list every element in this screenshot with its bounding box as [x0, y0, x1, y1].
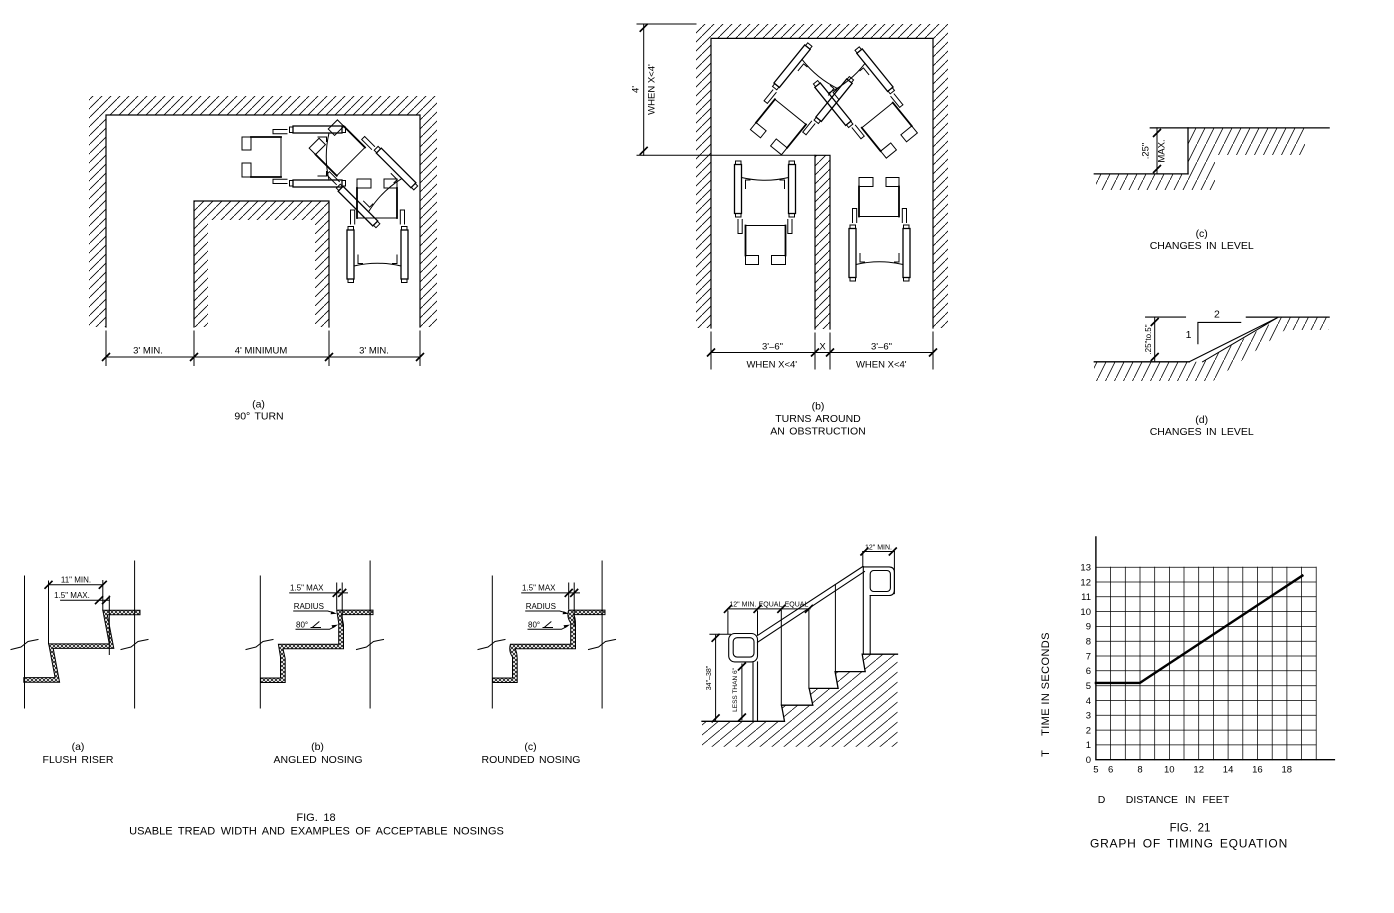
svg-text:T TIME IN SECONDS: T TIME IN SECONDS	[1040, 632, 1052, 757]
svg-text:(c): (c)	[524, 741, 536, 753]
svg-text:10: 10	[1164, 765, 1175, 776]
svg-text:(a): (a)	[252, 399, 265, 411]
svg-text:FIG. 18: FIG. 18	[296, 812, 335, 824]
svg-text:2: 2	[1214, 309, 1220, 321]
svg-text:12" MIN.: 12" MIN.	[729, 602, 756, 609]
svg-text:WHEN X<4': WHEN X<4'	[856, 360, 907, 371]
svg-text:CHANGES IN LEVEL: CHANGES IN LEVEL	[1150, 240, 1254, 252]
svg-text:8: 8	[1086, 637, 1091, 648]
svg-text:CHANGES IN LEVEL: CHANGES IN LEVEL	[1150, 426, 1254, 438]
svg-text:DISTANCE IN FEET: DISTANCE IN FEET	[1126, 794, 1230, 806]
svg-text:13: 13	[1080, 563, 1091, 574]
svg-text:4': 4'	[631, 86, 642, 93]
svg-text:1.5" MAX.: 1.5" MAX.	[54, 591, 90, 600]
svg-text:11: 11	[1081, 592, 1091, 603]
svg-text:(c): (c)	[1196, 228, 1208, 240]
svg-text:3'–6": 3'–6"	[871, 342, 892, 353]
svg-text:(a): (a)	[72, 741, 85, 753]
svg-text:7: 7	[1086, 651, 1091, 662]
svg-text:4' MINIMUM: 4' MINIMUM	[235, 346, 288, 357]
svg-text:14: 14	[1223, 765, 1234, 776]
svg-text:MAX.: MAX.	[1157, 139, 1168, 162]
svg-text:6: 6	[1086, 666, 1091, 677]
svg-text:EQUAL: EQUAL	[785, 602, 809, 609]
svg-text:34"–38": 34"–38"	[706, 665, 713, 690]
svg-text:3'–6": 3'–6"	[762, 342, 783, 353]
svg-text:WHEN X<4': WHEN X<4'	[647, 64, 658, 115]
svg-text:1: 1	[1186, 329, 1192, 341]
svg-text:9: 9	[1086, 622, 1091, 633]
svg-text:8: 8	[1137, 765, 1142, 776]
svg-text:1.5" MAX: 1.5" MAX	[290, 584, 324, 593]
svg-text:5: 5	[1093, 765, 1098, 776]
svg-text:EQUAL: EQUAL	[759, 602, 783, 609]
svg-text:90° TURN: 90° TURN	[234, 411, 283, 423]
svg-text:.25": .25"	[1141, 143, 1152, 160]
svg-text:6: 6	[1108, 765, 1113, 776]
svg-text:ANGLED NOSING: ANGLED NOSING	[273, 754, 362, 766]
svg-text:WHEN X<4': WHEN X<4'	[746, 360, 797, 371]
svg-text:USABLE TREAD WIDTH AND EXAMPLE: USABLE TREAD WIDTH AND EXAMPLES OF ACCEP…	[129, 826, 504, 838]
svg-text:1.5" MAX: 1.5" MAX	[522, 584, 556, 593]
svg-text:12: 12	[1193, 765, 1204, 776]
svg-text:80°: 80°	[528, 621, 540, 630]
svg-text:RADIUS: RADIUS	[526, 602, 556, 611]
svg-text:3: 3	[1086, 711, 1091, 722]
svg-text:10: 10	[1080, 607, 1091, 618]
svg-text:(b): (b)	[311, 741, 324, 753]
svg-text:D: D	[1098, 794, 1106, 806]
svg-text:4: 4	[1086, 696, 1091, 707]
svg-text:GRAPH OF TIMING EQUATION: GRAPH OF TIMING EQUATION	[1090, 837, 1288, 851]
svg-text:1: 1	[1086, 740, 1091, 751]
svg-text:80°: 80°	[296, 621, 308, 630]
svg-text:ROUNDED NOSING: ROUNDED NOSING	[482, 754, 581, 766]
svg-text:11" MIN.: 11" MIN.	[61, 576, 91, 585]
svg-text:16: 16	[1252, 765, 1263, 776]
svg-text:LESS THAN 6": LESS THAN 6"	[732, 667, 739, 711]
svg-text:2: 2	[1086, 725, 1091, 736]
svg-text:18: 18	[1282, 765, 1293, 776]
svg-text:RADIUS: RADIUS	[294, 602, 324, 611]
svg-text:TURNS AROUND: TURNS AROUND	[775, 413, 861, 425]
svg-text:0: 0	[1086, 755, 1091, 766]
svg-text:FLUSH RISER: FLUSH RISER	[43, 754, 114, 766]
svg-text:5: 5	[1086, 681, 1091, 692]
svg-text:12: 12	[1080, 577, 1091, 588]
svg-text:3' MIN.: 3' MIN.	[133, 346, 163, 357]
svg-text:FIG. 21: FIG. 21	[1170, 823, 1211, 835]
svg-text:12" MIN.: 12" MIN.	[865, 545, 892, 552]
svg-text:.25"to.5": .25"to.5"	[1144, 324, 1153, 354]
svg-text:(b): (b)	[812, 401, 825, 413]
svg-text:(d): (d)	[1195, 414, 1208, 426]
svg-text:AN OBSTRUCTION: AN OBSTRUCTION	[770, 426, 865, 438]
svg-text:X: X	[819, 342, 826, 353]
svg-text:3' MIN.: 3' MIN.	[359, 346, 389, 357]
